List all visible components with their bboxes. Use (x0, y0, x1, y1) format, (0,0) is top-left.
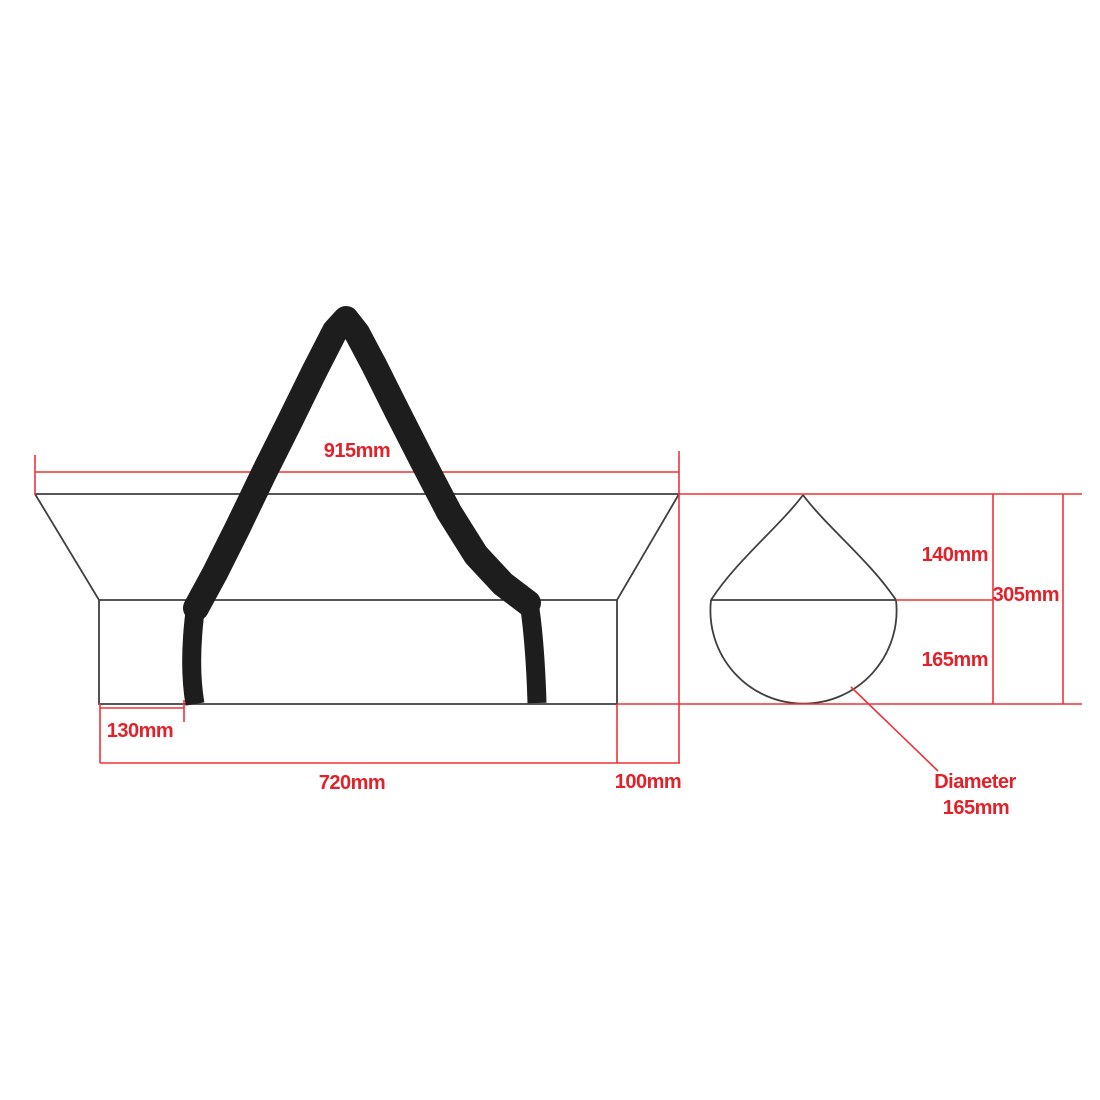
label-strap-inset: 130mm (107, 720, 173, 742)
end-view (710, 495, 896, 704)
label-overall-height: 305mm (993, 584, 1059, 606)
carry-strap (192, 319, 537, 704)
strap-handle-loop (196, 319, 528, 608)
end-view-circle-arc (710, 600, 896, 704)
label-cone-height: 140mm (922, 544, 988, 566)
bag-dimension-diagram: 915mm 130mm 720mm 100mm 140mm 305mm 165m… (0, 0, 1100, 1100)
side-view-outline (35, 494, 679, 704)
strap-right-foot (529, 602, 537, 703)
label-diameter-value: 165mm (943, 797, 1009, 819)
label-lower-height: 165mm (922, 649, 988, 671)
label-diameter-word: Diameter (934, 771, 1016, 793)
end-view-cone-left-edge (711, 495, 803, 600)
label-top-width: 915mm (324, 440, 390, 462)
end-view-cone-right-edge (803, 495, 896, 600)
side-view (35, 494, 679, 704)
diameter-leader-line (851, 687, 938, 771)
label-taper-length: 100mm (615, 771, 681, 793)
technical-drawing-canvas: 915mm 130mm 720mm 100mm 140mm 305mm 165m… (0, 0, 1100, 1100)
label-body-length: 720mm (319, 772, 385, 794)
